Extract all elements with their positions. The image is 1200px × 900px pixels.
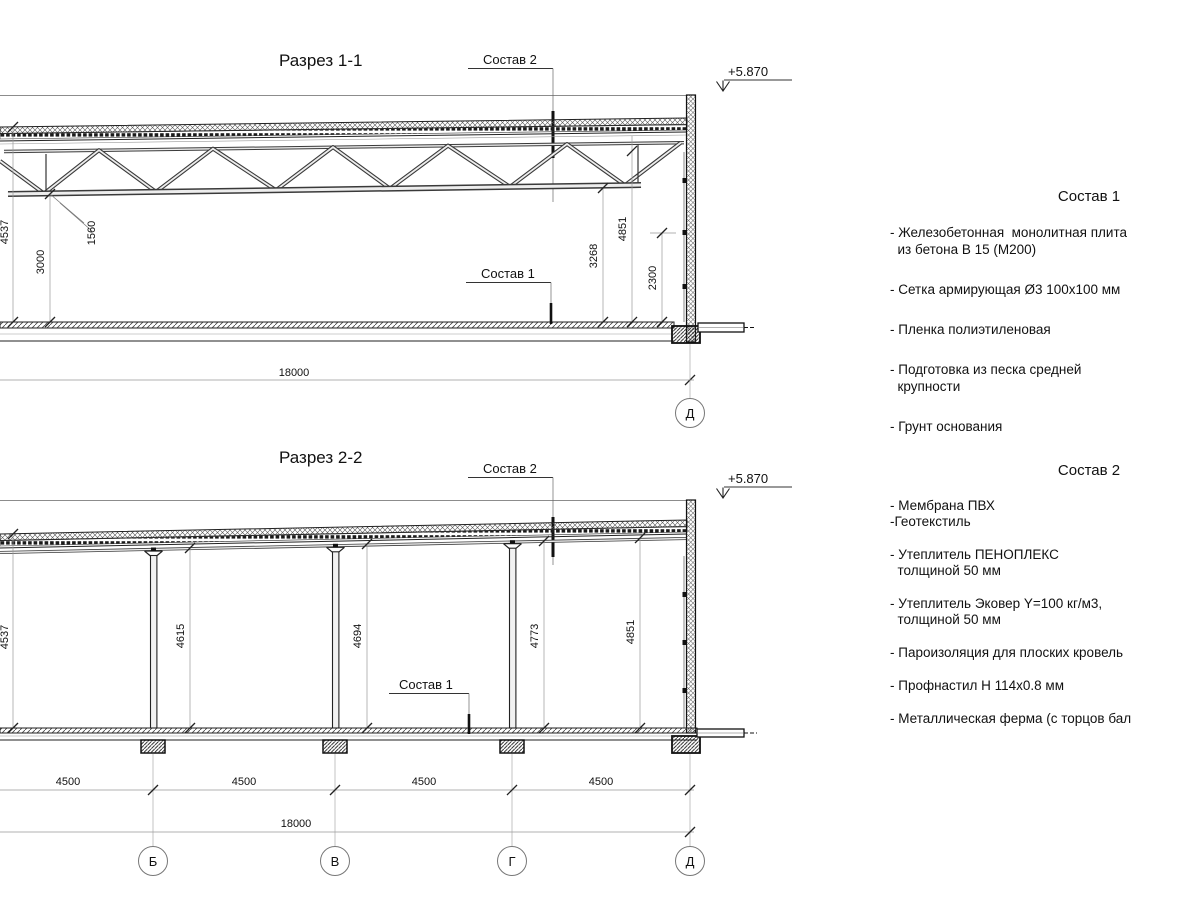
dim-4773-s2: 4773 — [529, 624, 541, 648]
grid-letter-d-s1: Д — [686, 406, 695, 421]
materials-list-sostav1: Состав 1 - Железобетонная монолитная пли… — [890, 188, 1200, 458]
dim-4694-s2: 4694 — [352, 624, 364, 648]
section-2-height-dims: 4537 4615 4694 4773 4851 — [0, 529, 645, 733]
sostav1-callout-label: Состав 1 — [481, 266, 535, 281]
dim-bay-2: 4500 — [232, 776, 256, 788]
materials-list-sostav2: Состав 2 - Мембрана ПВХ -Геотекстиль - У… — [890, 462, 1200, 744]
section-2-columns — [145, 540, 522, 728]
column-footing — [141, 740, 165, 753]
wall-footing-s2 — [672, 736, 700, 753]
section-1-right-dims: 3268 4851 2300 — [588, 136, 676, 327]
section-2-floor-slab — [0, 728, 757, 753]
elevation-value-s2: +5.870 — [728, 471, 768, 486]
wall-footing — [672, 326, 700, 343]
sostav1-list-title: Состав 1 — [890, 188, 1200, 205]
section-1-span-dim: 18000 Д — [0, 344, 705, 428]
sostav1-item: - Подготовка из песка средней крупности — [890, 361, 1200, 395]
dim-4615-s2: 4615 — [175, 624, 187, 648]
section-2-bottom-dims: 4500 4500 4500 4500 18000 Б В Г Д — [0, 754, 705, 876]
sostav2-item: - Мембрана ПВХ -Геотекстиль — [890, 498, 1200, 530]
section-1-roof — [0, 118, 687, 144]
sostav1-callout-label-s2: Состав 1 — [399, 677, 453, 692]
sections-drawing: Разрез 1-1 Состав 2 +5.870 — [0, 0, 810, 900]
edge-beam — [698, 323, 756, 332]
dim-1560-truss-height: 1560 — [86, 221, 98, 245]
dim-4537-s2: 4537 — [0, 625, 11, 649]
section-1-title: Разрез 1-1 — [279, 51, 362, 70]
edge-beam-s2 — [697, 729, 757, 737]
dim-4851-s1: 4851 — [617, 217, 629, 241]
section-1: Разрез 1-1 Состав 2 +5.870 — [0, 51, 792, 428]
section-1-elevation-mark: +5.870 — [717, 64, 793, 91]
column-footing — [500, 740, 524, 753]
column — [327, 544, 345, 728]
grid-letter-g: Г — [508, 854, 515, 869]
sostav1-item: - Грунт основания — [890, 418, 1200, 435]
sostav2-item: - Металлическая ферма (с торцов бал — [890, 711, 1200, 727]
dim-2300-s1: 2300 — [647, 266, 659, 290]
sostav2-item: - Профнастил Н 114х0.8 мм — [890, 678, 1200, 694]
column — [504, 540, 522, 728]
dim-bay-3: 4500 — [412, 776, 436, 788]
dim-3268-s1: 3268 — [588, 244, 600, 268]
section-1-sostav1-leader: Состав 1 — [466, 266, 551, 324]
section-2: Разрез 2-2 Состав 2 +5.870 — [0, 448, 792, 876]
section-2-wall — [683, 500, 696, 733]
elevation-value: +5.870 — [728, 64, 768, 79]
sostav2-callout-label: Состав 2 — [483, 52, 537, 67]
grid-letter-b: Б — [149, 854, 158, 869]
dim-bay-4: 4500 — [589, 776, 613, 788]
sostav2-item: - Утеплитель ПЕНОПЛЕКС толщиной 50 мм — [890, 547, 1200, 579]
section-1-truss — [0, 143, 684, 195]
dim-3000-s1: 3000 — [35, 250, 47, 274]
drawing-sheet: Разрез 1-1 Состав 2 +5.870 — [0, 0, 1200, 900]
section-2-title: Разрез 2-2 — [279, 448, 362, 467]
dim-18000-s2: 18000 — [281, 818, 312, 830]
column-footing — [323, 740, 347, 753]
section-2-sostav1-leader: Состав 1 — [389, 677, 469, 734]
sostav2-callout-label-s2: Состав 2 — [483, 461, 537, 476]
sostav2-item: - Утеплитель Эковер Y=100 кг/м3, толщино… — [890, 596, 1200, 628]
section-1-floor-slab — [0, 322, 756, 343]
column — [145, 548, 163, 729]
dim-bay-1: 4500 — [56, 776, 80, 788]
grid-letter-d: Д — [686, 854, 695, 869]
dim-18000-s1: 18000 — [279, 367, 310, 379]
dim-4537-s1: 4537 — [0, 220, 11, 244]
sostav1-item: - Сетка армирующая Ø3 100х100 мм — [890, 281, 1200, 298]
grid-letter-v: В — [331, 854, 340, 869]
sostav2-list-title: Состав 2 — [890, 462, 1200, 479]
sostav2-item: - Пароизоляция для плоских кровель — [890, 645, 1200, 661]
sostav1-item: - Пленка полиэтиленовая — [890, 321, 1200, 338]
sostav1-item: - Железобетонная монолитная плита из бет… — [890, 224, 1200, 258]
section-2-elevation-mark: +5.870 — [717, 471, 793, 498]
dim-4851-s2: 4851 — [625, 620, 637, 644]
